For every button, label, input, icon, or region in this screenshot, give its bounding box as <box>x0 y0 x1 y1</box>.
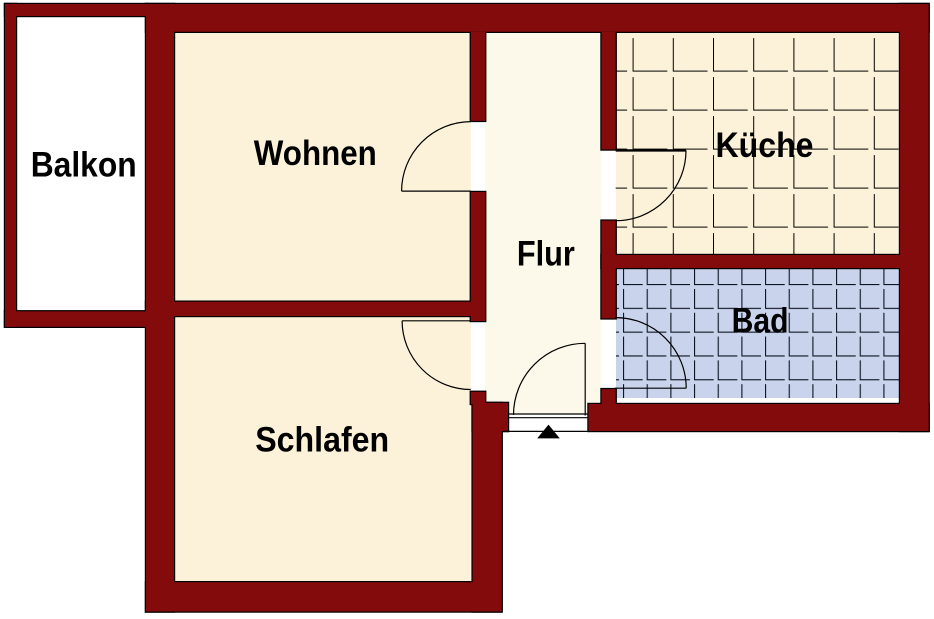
svg-text:Schlafen: Schlafen <box>255 421 389 460</box>
svg-text:Balkon: Balkon <box>31 146 137 185</box>
svg-text:Flur: Flur <box>517 234 575 273</box>
svg-text:Küche: Küche <box>716 126 814 165</box>
svg-text:Wohnen: Wohnen <box>254 134 377 173</box>
svg-text:Bad: Bad <box>732 301 789 340</box>
